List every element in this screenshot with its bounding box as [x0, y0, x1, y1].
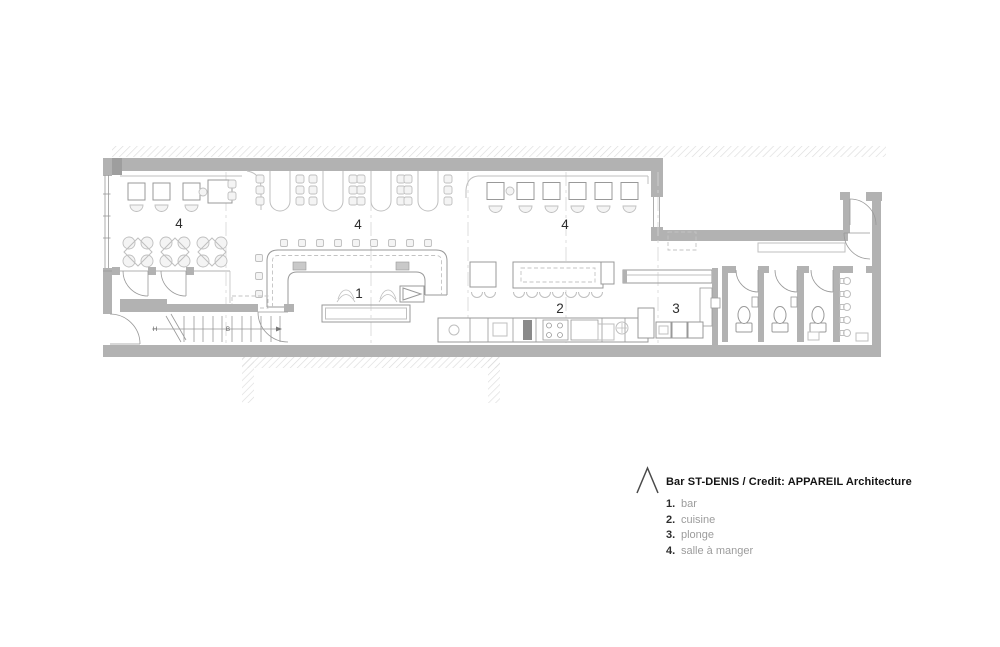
stool	[472, 292, 483, 298]
toilet-fixture	[736, 307, 752, 333]
floor-plan-page: 4 4 4 1 2 3 H B Bar ST-DENIS / Credit: A…	[0, 0, 1000, 647]
wc-bin	[808, 332, 819, 340]
plant	[337, 290, 355, 302]
round-table	[197, 237, 227, 267]
stool	[592, 292, 603, 298]
legend-item: 2. cuisine	[666, 514, 753, 530]
wc-partition	[797, 266, 804, 342]
chair	[489, 206, 502, 213]
bar-stool	[256, 273, 263, 280]
legend-item: 4. salle à manger	[666, 545, 753, 561]
chair	[545, 206, 558, 213]
stool	[579, 292, 590, 298]
front-entrance-door	[110, 314, 140, 344]
shelf-fixture	[840, 291, 851, 298]
high-table-long	[513, 262, 603, 288]
shelf-fixture	[840, 317, 851, 324]
wc-sink	[791, 297, 797, 307]
hatch-strip-bottom-right	[488, 357, 500, 403]
vestibule-door	[161, 271, 186, 296]
communal-tables	[470, 262, 614, 298]
plonge-equipment	[638, 308, 654, 338]
wc-door	[811, 270, 833, 292]
table	[569, 183, 586, 200]
round-table	[123, 237, 153, 267]
room-label-salle-a-manger-west: 4	[175, 216, 183, 231]
booth-table	[404, 171, 452, 211]
wc-partition	[758, 266, 764, 342]
booth-table	[357, 171, 405, 211]
shelf-fixture	[840, 278, 851, 285]
stool	[553, 292, 564, 298]
bar-stool	[407, 240, 414, 247]
bar-stool	[256, 255, 263, 262]
chair	[519, 206, 532, 213]
wc-door	[736, 270, 758, 292]
vestibule-door	[123, 271, 148, 296]
stair-break-line	[166, 314, 186, 342]
legend-item: 3. plonge	[666, 529, 753, 545]
stair-hall-door	[258, 312, 288, 342]
step-wall-upper	[651, 171, 663, 197]
stair-label-down: B	[226, 327, 230, 333]
stool	[566, 292, 577, 298]
storefront-glazing	[103, 175, 111, 268]
bar-stool	[335, 240, 342, 247]
stool	[540, 292, 551, 298]
bar-stool	[371, 240, 378, 247]
chair	[623, 206, 636, 213]
wc-partition	[833, 266, 840, 342]
floor-plan-drawing: 4 4 4 1 2 3 H B	[0, 0, 1000, 647]
plan-title: Bar ST-DENIS / Credit: APPAREIL Architec…	[666, 476, 912, 488]
bar-stool	[317, 240, 324, 247]
exterior-wall-right	[872, 201, 881, 352]
chair	[185, 205, 198, 212]
chair	[597, 206, 610, 213]
plonge-sink-unit	[688, 322, 703, 338]
bar-stool	[389, 240, 396, 247]
bar-stool	[353, 240, 360, 247]
high-table-small	[470, 262, 496, 287]
stool	[199, 188, 207, 196]
wc-sink	[752, 297, 758, 307]
chair	[228, 180, 236, 188]
room-label-plonge: 3	[672, 301, 680, 316]
table	[487, 183, 504, 200]
shelf-fixture	[840, 304, 851, 311]
legend-item-number: 4.	[666, 545, 681, 557]
kitchen-area	[438, 318, 648, 342]
legend-item-label: plonge	[681, 529, 714, 541]
hatch-strip-top	[112, 146, 886, 157]
bar-equipment	[396, 262, 409, 270]
table	[543, 183, 560, 200]
dining-room-east	[466, 176, 648, 213]
hatch-strip-bottom-left	[242, 357, 254, 403]
bar-stool	[299, 240, 306, 247]
wc-door	[775, 270, 797, 292]
stool	[485, 292, 496, 298]
booth-table	[309, 171, 357, 211]
legend: 1. bar 2. cuisine 3. plonge 4. salle à m…	[666, 498, 753, 560]
hatch-strip-bottom	[242, 357, 500, 368]
table	[153, 183, 170, 200]
room-label-salle-a-manger-east: 4	[561, 217, 569, 232]
vestibule-cap	[840, 192, 850, 200]
legend-item-label: bar	[681, 498, 697, 510]
bar-stool	[281, 240, 288, 247]
booth-table	[256, 171, 304, 211]
legend-item-number: 3.	[666, 529, 681, 541]
shelf-fixture	[840, 330, 851, 337]
corridor-shelf	[758, 243, 845, 252]
stool	[527, 292, 538, 298]
room-label-salle-a-manger-center: 4	[354, 217, 362, 232]
stair-arrow	[276, 327, 282, 332]
exterior-wall-left	[103, 268, 112, 314]
plonge-sink-unit	[656, 322, 671, 338]
toilet-fixture	[772, 307, 788, 333]
north-arrow-icon	[634, 465, 662, 497]
bar-stool	[425, 240, 432, 247]
legend-item-number: 1.	[666, 498, 681, 510]
stair-wall	[167, 304, 258, 312]
corridor-wall	[651, 230, 848, 241]
chair	[571, 206, 584, 213]
dishwasher	[700, 288, 712, 326]
entry-and-stairs	[103, 267, 294, 344]
round-table	[160, 237, 190, 267]
plonge-counter	[623, 270, 712, 283]
bar-equipment	[293, 262, 306, 270]
vestibule-cap	[866, 192, 882, 201]
chair	[228, 192, 236, 200]
party-wall-bottom	[103, 345, 881, 357]
service-station	[601, 262, 614, 284]
toilet-block	[722, 266, 840, 342]
booth-row-center	[228, 171, 452, 211]
exterior-wall-left-pier	[103, 158, 112, 176]
table	[621, 183, 638, 200]
storage-room	[840, 266, 872, 341]
room-label-bar: 1	[355, 286, 363, 301]
legend-item: 1. bar	[666, 498, 753, 514]
floor-drain	[616, 322, 628, 334]
wc-wall	[722, 266, 728, 342]
plant	[379, 290, 397, 302]
plonge-sink-unit	[672, 322, 687, 338]
sink-triangle	[400, 286, 424, 302]
stair-label-up: H	[153, 327, 157, 333]
kitchen-equipment	[523, 320, 532, 340]
table	[183, 183, 200, 200]
room-label-cuisine: 2	[556, 301, 564, 316]
table	[517, 183, 534, 200]
stool	[506, 187, 514, 195]
stair-wall	[120, 299, 167, 312]
legend-item-label: cuisine	[681, 514, 715, 526]
table	[595, 183, 612, 200]
wall-sink	[711, 298, 720, 308]
stool	[514, 292, 525, 298]
toilet-fixture	[810, 307, 826, 333]
legend-item-label: salle à manger	[681, 545, 753, 557]
table	[128, 183, 145, 200]
party-wall-top	[103, 158, 663, 171]
chair	[130, 205, 143, 212]
chair	[155, 205, 168, 212]
legend-item-number: 2.	[666, 514, 681, 526]
